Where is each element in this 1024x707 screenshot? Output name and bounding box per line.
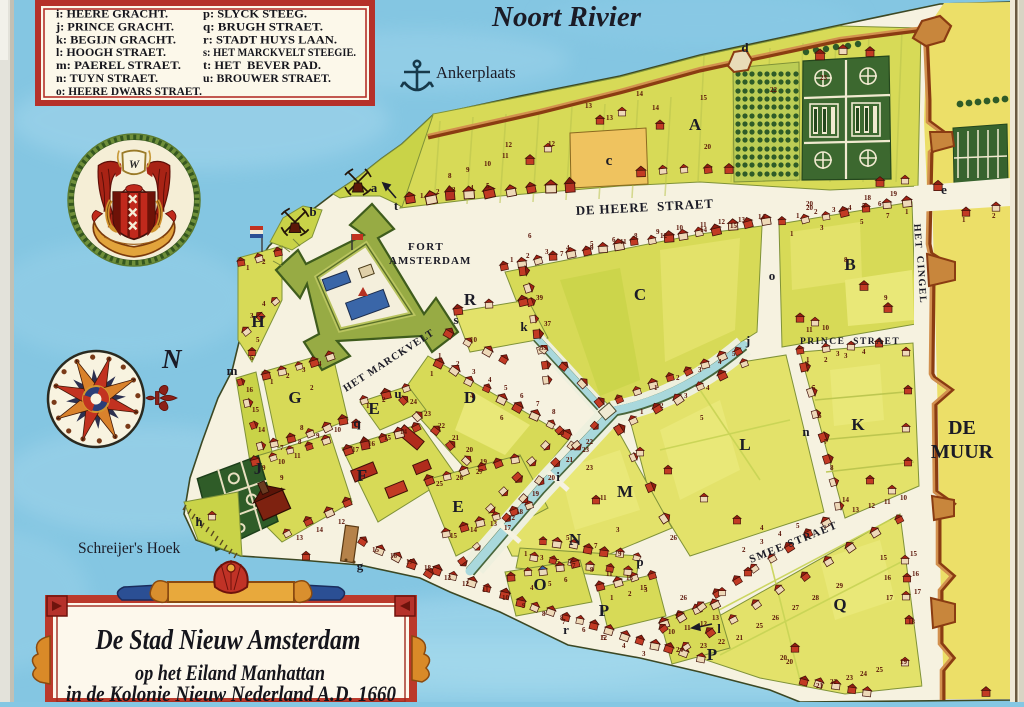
svg-text:24: 24 (410, 398, 418, 406)
svg-text:5: 5 (860, 218, 864, 226)
svg-text:3: 3 (836, 350, 840, 358)
svg-text:15: 15 (372, 546, 380, 554)
svg-text:K: K (851, 415, 865, 434)
svg-text:N: N (161, 344, 183, 374)
svg-text:21: 21 (566, 456, 574, 464)
svg-text:r: STADT HUYS LAAN.: r: STADT HUYS LAAN. (203, 32, 337, 46)
svg-text:28: 28 (812, 594, 820, 602)
svg-text:MUUR: MUUR (931, 441, 994, 463)
svg-text:Noort Rivier: Noort Rivier (491, 1, 642, 33)
svg-text:26: 26 (680, 594, 688, 602)
svg-text:4: 4 (488, 376, 492, 384)
svg-text:16: 16 (912, 570, 920, 578)
svg-text:2: 2 (676, 374, 680, 382)
svg-text:1: 1 (962, 216, 966, 224)
svg-text:5: 5 (548, 580, 552, 588)
svg-text:t: HET BEVER PAD.: t: HET BEVER PAD. (203, 58, 321, 72)
svg-text:21: 21 (816, 682, 824, 690)
svg-text:17: 17 (406, 558, 414, 566)
svg-text:20: 20 (548, 474, 556, 482)
svg-text:s: HET MARCKVELT STEEGIE.: s: HET MARCKVELT STEEGIE. (203, 45, 356, 59)
svg-text:e: e (941, 182, 947, 197)
svg-text:14: 14 (400, 428, 408, 436)
svg-text:k: k (520, 319, 528, 334)
svg-text:9: 9 (590, 244, 594, 252)
svg-text:2: 2 (824, 356, 828, 364)
svg-text:1: 1 (510, 256, 514, 264)
svg-text:13: 13 (712, 614, 720, 622)
svg-text:16: 16 (246, 386, 254, 394)
svg-text:12: 12 (508, 514, 516, 522)
svg-text:4: 4 (470, 392, 474, 400)
svg-text:2: 2 (382, 396, 386, 404)
svg-text:2: 2 (526, 252, 530, 260)
svg-text:8: 8 (560, 614, 564, 622)
svg-text:29: 29 (836, 582, 844, 590)
svg-text:8: 8 (634, 232, 638, 240)
svg-text:1: 1 (654, 384, 658, 392)
svg-text:7: 7 (594, 542, 598, 550)
svg-text:22: 22 (718, 638, 726, 646)
svg-text:10: 10 (470, 336, 478, 344)
svg-text:15: 15 (910, 550, 918, 558)
svg-text:14: 14 (636, 90, 644, 98)
svg-text:M: M (617, 482, 633, 501)
svg-text:6: 6 (612, 236, 616, 244)
svg-text:11: 11 (684, 624, 691, 632)
svg-text:P: P (707, 645, 717, 664)
svg-text:11: 11 (620, 238, 627, 246)
svg-text:P: P (599, 601, 609, 620)
svg-text:2: 2 (742, 546, 746, 554)
svg-text:26: 26 (456, 474, 464, 482)
svg-text:10: 10 (676, 224, 684, 232)
svg-text:18: 18 (864, 194, 872, 202)
svg-text:3: 3 (698, 366, 702, 374)
svg-text:l: HOOGH STRAET.: l: HOOGH STRAET. (56, 45, 166, 59)
svg-text:Schreijer's Hoek: Schreijer's Hoek (78, 540, 180, 557)
svg-text:o: HEERE DWARS STRAET.: o: HEERE DWARS STRAET. (56, 84, 202, 98)
svg-text:7: 7 (536, 400, 540, 408)
svg-text:4: 4 (862, 348, 866, 356)
svg-text:8: 8 (844, 256, 848, 264)
svg-text:3: 3 (616, 526, 620, 534)
svg-text:in de Kolonie Nieuw Nederland: in de Kolonie Nieuw Nederland A.D. 1660 (66, 681, 396, 702)
svg-text:12: 12 (548, 140, 556, 148)
svg-text:12: 12 (600, 634, 608, 642)
svg-text:16: 16 (884, 574, 892, 582)
svg-text:11: 11 (806, 326, 813, 334)
svg-text:1: 1 (640, 408, 644, 416)
svg-text:9: 9 (280, 474, 284, 482)
svg-text:14: 14 (470, 526, 478, 534)
svg-text:11: 11 (600, 494, 607, 502)
svg-text:12: 12 (660, 232, 668, 240)
svg-text:22: 22 (770, 86, 778, 94)
svg-text:12: 12 (718, 218, 726, 226)
svg-text:6: 6 (250, 354, 254, 362)
svg-text:PRINCE STRAET: PRINCE STRAET (800, 337, 900, 347)
svg-text:24: 24 (676, 646, 684, 654)
svg-text:3: 3 (250, 312, 254, 320)
svg-text:7: 7 (824, 438, 828, 446)
svg-text:7: 7 (280, 444, 284, 452)
svg-text:2: 2 (660, 402, 664, 410)
svg-text:10: 10 (822, 324, 830, 332)
svg-text:4: 4 (778, 530, 782, 538)
svg-text:26: 26 (772, 614, 780, 622)
svg-text:18: 18 (424, 564, 432, 572)
svg-text:1: 1 (796, 212, 800, 220)
svg-text:5: 5 (732, 350, 736, 358)
svg-text:4: 4 (760, 524, 764, 532)
svg-text:9: 9 (262, 464, 266, 472)
svg-text:4: 4 (718, 358, 722, 366)
svg-text:9: 9 (618, 550, 622, 558)
svg-text:1: 1 (420, 192, 424, 200)
svg-text:4: 4 (470, 184, 474, 192)
svg-text:5: 5 (796, 522, 800, 530)
svg-text:1: 1 (524, 550, 528, 558)
svg-text:4: 4 (318, 360, 322, 368)
svg-text:6: 6 (520, 392, 524, 400)
svg-text:17: 17 (914, 588, 922, 596)
svg-text:12: 12 (700, 620, 708, 628)
svg-text:20: 20 (806, 204, 814, 212)
svg-text:5: 5 (256, 336, 260, 344)
svg-text:u: BROUWER STRAET.: u: BROUWER STRAET. (203, 71, 331, 85)
svg-text:a: a (371, 180, 378, 195)
svg-text:11: 11 (294, 452, 301, 460)
svg-text:27: 27 (792, 604, 800, 612)
svg-text:25: 25 (876, 666, 884, 674)
svg-text:14: 14 (258, 426, 266, 434)
svg-text:11: 11 (482, 586, 489, 594)
svg-text:24: 24 (860, 670, 868, 678)
svg-text:17: 17 (886, 594, 894, 602)
svg-text:j: j (745, 333, 750, 348)
svg-text:C: C (634, 285, 646, 304)
svg-text:q: BRUGH STRAET.: q: BRUGH STRAET. (203, 19, 323, 33)
svg-text:10: 10 (484, 160, 492, 168)
svg-text:17: 17 (352, 446, 360, 454)
svg-text:15: 15 (252, 406, 260, 414)
svg-text:10: 10 (334, 426, 342, 434)
svg-text:k: BEGIJN GRACHT.: k: BEGIJN GRACHT. (56, 32, 176, 46)
svg-text:3: 3 (302, 366, 306, 374)
svg-text:3: 3 (452, 186, 456, 194)
svg-text:26: 26 (670, 534, 678, 542)
svg-text:14: 14 (652, 104, 660, 112)
svg-text:8: 8 (448, 172, 452, 180)
svg-text:23: 23 (586, 464, 594, 472)
svg-text:5: 5 (556, 558, 560, 566)
svg-text:19: 19 (890, 190, 898, 198)
svg-text:n: TUYN STRAET.: n: TUYN STRAET. (56, 71, 158, 85)
svg-text:8: 8 (830, 464, 834, 472)
svg-text:De Stad Nieuw Amsterdam: De Stad Nieuw Amsterdam (95, 624, 361, 656)
svg-text:3: 3 (832, 206, 836, 214)
svg-text:15: 15 (450, 532, 458, 540)
svg-text:o: o (769, 268, 776, 283)
svg-text:L: L (739, 435, 750, 454)
svg-text:9: 9 (884, 294, 888, 302)
svg-text:FORT: FORT (408, 241, 444, 253)
svg-text:8: 8 (552, 408, 556, 416)
svg-text:m: PAEREL STRAET.: m: PAEREL STRAET. (56, 58, 181, 72)
svg-text:21: 21 (452, 434, 460, 442)
svg-text:14: 14 (316, 526, 324, 534)
svg-text:9: 9 (522, 602, 526, 610)
svg-text:3: 3 (540, 554, 544, 562)
svg-text:16: 16 (390, 552, 398, 560)
svg-text:2: 2 (814, 208, 818, 216)
svg-text:12: 12 (338, 518, 346, 526)
svg-text:2: 2 (456, 360, 460, 368)
svg-text:10: 10 (900, 494, 908, 502)
svg-text:DE: DE (948, 417, 976, 439)
svg-text:11: 11 (884, 498, 891, 506)
svg-text:q: q (353, 415, 361, 430)
svg-text:13: 13 (490, 520, 498, 528)
svg-text:23: 23 (700, 642, 708, 650)
svg-text:1: 1 (806, 356, 810, 364)
svg-text:12: 12 (505, 141, 513, 149)
svg-text:4: 4 (262, 300, 266, 308)
svg-text:6: 6 (528, 232, 532, 240)
svg-text:u: u (394, 386, 401, 401)
svg-text:2: 2 (992, 212, 996, 220)
svg-text:22: 22 (438, 422, 446, 430)
svg-text:14: 14 (700, 226, 708, 234)
svg-text:9: 9 (316, 432, 320, 440)
svg-text:p: p (636, 554, 643, 569)
svg-text:E: E (452, 497, 463, 516)
svg-text:22: 22 (586, 438, 594, 446)
svg-text:1: 1 (366, 402, 370, 410)
svg-text:23: 23 (846, 674, 854, 682)
svg-text:13: 13 (738, 216, 746, 224)
svg-text:A: A (689, 115, 702, 134)
svg-text:3: 3 (472, 368, 476, 376)
svg-text:6: 6 (500, 414, 504, 422)
svg-text:22: 22 (830, 678, 838, 686)
svg-text:i: HEERE GRACHT.: i: HEERE GRACHT. (56, 7, 168, 21)
svg-text:9: 9 (590, 566, 594, 574)
svg-text:6: 6 (582, 626, 586, 634)
svg-text:N: N (569, 530, 582, 549)
svg-text:15: 15 (640, 584, 648, 592)
svg-text:7: 7 (560, 250, 564, 258)
svg-text:10: 10 (278, 458, 286, 466)
svg-text:8: 8 (300, 424, 304, 432)
svg-text:6: 6 (818, 412, 822, 420)
svg-text:1: 1 (790, 230, 794, 238)
svg-text:8: 8 (542, 610, 546, 618)
svg-text:27: 27 (476, 468, 484, 476)
svg-text:2: 2 (628, 590, 632, 598)
svg-text:12: 12 (462, 580, 470, 588)
svg-text:1: 1 (438, 352, 442, 360)
svg-text:i: i (556, 469, 560, 484)
svg-text:Q: Q (833, 595, 846, 614)
svg-text:20: 20 (704, 143, 712, 151)
svg-text:19: 19 (532, 490, 540, 498)
svg-text:2: 2 (262, 258, 266, 266)
svg-text:G: G (288, 388, 301, 407)
svg-text:3: 3 (684, 392, 688, 400)
svg-text:s: s (453, 312, 458, 327)
svg-text:9: 9 (466, 166, 470, 174)
svg-text:13: 13 (296, 534, 304, 542)
svg-text:3: 3 (844, 352, 848, 360)
svg-text:t: t (394, 198, 399, 213)
svg-text:l: l (717, 621, 721, 636)
svg-text:1: 1 (905, 208, 909, 216)
svg-text:4: 4 (622, 642, 626, 650)
svg-text:8: 8 (298, 438, 302, 446)
svg-text:HET: HET (911, 223, 924, 249)
svg-text:2: 2 (310, 384, 314, 392)
svg-text:13: 13 (444, 574, 452, 582)
svg-text:13: 13 (585, 102, 593, 110)
svg-text:6: 6 (878, 200, 882, 208)
svg-text:3: 3 (642, 650, 646, 658)
svg-text:4: 4 (530, 584, 534, 592)
svg-text:E: E (368, 399, 379, 418)
svg-text:18: 18 (516, 508, 524, 516)
svg-text:p: SLYCK STEEG.: p: SLYCK STEEG. (203, 7, 307, 21)
svg-text:10: 10 (502, 594, 510, 602)
svg-text:10: 10 (668, 628, 676, 636)
svg-text:17: 17 (504, 524, 512, 532)
svg-text:14: 14 (758, 213, 766, 221)
svg-text:11: 11 (502, 152, 509, 160)
svg-text:18: 18 (908, 618, 916, 626)
svg-text:7: 7 (572, 562, 576, 570)
svg-text:5: 5 (486, 182, 490, 190)
svg-text:5: 5 (700, 414, 704, 422)
svg-text:5: 5 (566, 534, 570, 542)
svg-text:3: 3 (545, 248, 549, 256)
svg-text:23: 23 (820, 74, 828, 82)
svg-text:n: n (802, 424, 810, 439)
svg-text:O: O (533, 575, 546, 594)
svg-text:5: 5 (504, 384, 508, 392)
svg-text:g: g (357, 558, 364, 573)
svg-text:j: PRINCE GRACHT.: j: PRINCE GRACHT. (55, 19, 174, 33)
svg-text:15: 15 (880, 554, 888, 562)
svg-text:R: R (464, 290, 477, 309)
svg-text:5: 5 (812, 384, 816, 392)
svg-text:3: 3 (760, 538, 764, 546)
svg-text:23: 23 (424, 410, 432, 418)
svg-text:3: 3 (820, 224, 824, 232)
svg-text:1: 1 (430, 370, 434, 378)
svg-text:39: 39 (536, 294, 544, 302)
svg-text:d: d (741, 40, 749, 55)
svg-text:h: h (195, 514, 203, 529)
svg-text:13: 13 (606, 114, 614, 122)
svg-text:1: 1 (610, 594, 614, 602)
svg-text:13: 13 (626, 574, 634, 582)
svg-text:15: 15 (384, 434, 392, 442)
svg-text:16: 16 (368, 440, 376, 448)
svg-text:AMSTERDAM: AMSTERDAM (389, 255, 471, 267)
svg-text:25: 25 (436, 480, 444, 488)
svg-text:b: b (309, 204, 316, 219)
svg-text:6: 6 (564, 576, 568, 584)
svg-text:37: 37 (544, 320, 552, 328)
svg-text:1: 1 (270, 378, 274, 386)
svg-text:15: 15 (700, 94, 708, 102)
svg-text:21: 21 (736, 634, 744, 642)
svg-text:m: m (227, 363, 238, 378)
svg-text:12: 12 (868, 502, 876, 510)
svg-text:19: 19 (480, 458, 488, 466)
svg-text:14: 14 (842, 496, 850, 504)
svg-text:c: c (606, 153, 613, 169)
svg-text:4: 4 (848, 204, 852, 212)
svg-text:7: 7 (886, 212, 890, 220)
svg-text:19: 19 (900, 658, 908, 666)
svg-text:Ankerplaats: Ankerplaats (436, 63, 516, 82)
svg-text:5: 5 (862, 202, 866, 210)
svg-text:35: 35 (540, 344, 548, 352)
svg-text:25: 25 (756, 622, 764, 630)
svg-text:4: 4 (566, 244, 570, 252)
svg-text:2: 2 (436, 188, 440, 196)
svg-text:15: 15 (730, 222, 738, 230)
svg-text:20: 20 (466, 446, 474, 454)
svg-text:23: 23 (582, 446, 590, 454)
svg-text:13: 13 (852, 506, 860, 514)
svg-text:4: 4 (706, 384, 710, 392)
svg-text:11: 11 (606, 570, 613, 578)
svg-text:20: 20 (786, 658, 794, 666)
svg-text:F: F (357, 466, 367, 485)
svg-text:1: 1 (246, 264, 250, 272)
svg-text:W: W (129, 158, 140, 171)
svg-text:20: 20 (780, 654, 788, 662)
svg-text:2: 2 (286, 372, 290, 380)
